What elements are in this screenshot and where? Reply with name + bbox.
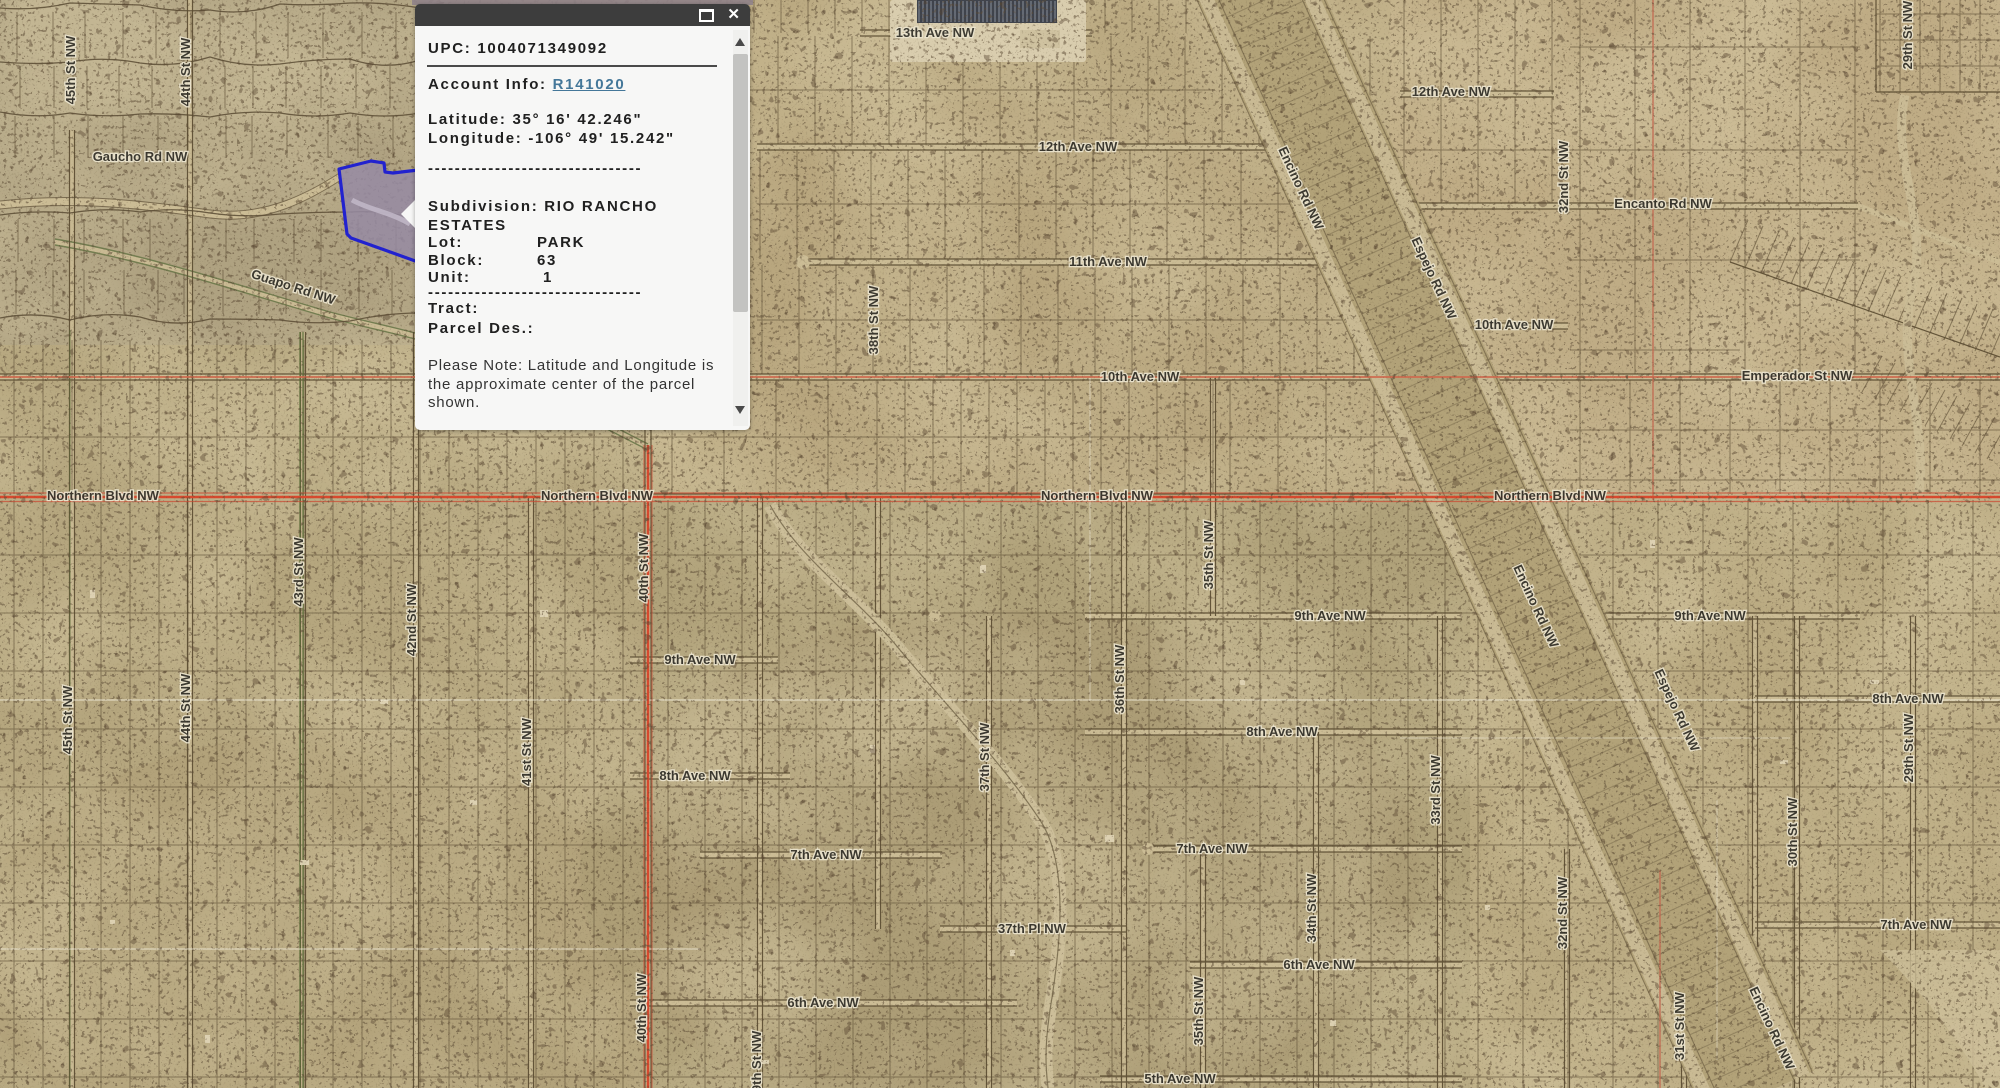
svg-text:31st St NW: 31st St NW: [1672, 991, 1687, 1060]
svg-text:7th Ave NW: 7th Ave NW: [790, 847, 862, 862]
svg-text:8th Ave NW: 8th Ave NW: [659, 768, 731, 783]
svg-text:43rd St NW: 43rd St NW: [291, 537, 306, 607]
svg-text:12th Ave NW: 12th Ave NW: [1412, 84, 1491, 99]
svg-text:35th St NW: 35th St NW: [1201, 520, 1216, 589]
svg-text:37th Pl NW: 37th Pl NW: [998, 921, 1067, 936]
svg-text:30th St NW: 30th St NW: [1785, 797, 1800, 866]
svg-text:44th St NW: 44th St NW: [178, 37, 193, 106]
svg-text:6th Ave NW: 6th Ave NW: [1283, 957, 1355, 972]
svg-text:34th St NW: 34th St NW: [1304, 873, 1319, 942]
svg-text:Gaucho Rd NW: Gaucho Rd NW: [93, 149, 188, 164]
svg-text:13th Ave NW: 13th Ave NW: [896, 25, 975, 40]
svg-text:42nd St NW: 42nd St NW: [404, 583, 419, 656]
svg-text:12th Ave NW: 12th Ave NW: [1039, 139, 1118, 154]
svg-text:9th Ave NW: 9th Ave NW: [664, 652, 736, 667]
svg-text:45th St NW: 45th St NW: [60, 685, 75, 754]
svg-text:5th Ave NW: 5th Ave NW: [1144, 1071, 1216, 1086]
svg-text:Northern Blvd NW: Northern Blvd NW: [47, 488, 160, 503]
svg-text:33rd St NW: 33rd St NW: [1428, 755, 1443, 825]
svg-text:7th Ave NW: 7th Ave NW: [1880, 917, 1952, 932]
svg-text:37th St NW: 37th St NW: [977, 722, 992, 791]
svg-text:10th Ave NW: 10th Ave NW: [1101, 369, 1180, 384]
svg-text:44th St NW: 44th St NW: [178, 673, 193, 742]
svg-text:40th St NW: 40th St NW: [634, 973, 649, 1042]
svg-text:32nd St NW: 32nd St NW: [1556, 140, 1571, 213]
svg-text:9th Ave NW: 9th Ave NW: [1294, 608, 1366, 623]
svg-text:11th Ave NW: 11th Ave NW: [1069, 254, 1148, 269]
svg-text:6th Ave NW: 6th Ave NW: [787, 995, 859, 1010]
svg-text:36th St NW: 36th St NW: [1112, 644, 1127, 713]
svg-text:8th Ave NW: 8th Ave NW: [1872, 691, 1944, 706]
svg-text:8th Ave NW: 8th Ave NW: [1246, 724, 1318, 739]
svg-text:29th St NW: 29th St NW: [1901, 713, 1916, 782]
svg-text:10th Ave NW: 10th Ave NW: [1475, 317, 1554, 332]
svg-text:32nd St NW: 32nd St NW: [1555, 876, 1570, 949]
svg-text:39th St NW: 39th St NW: [749, 1030, 764, 1088]
svg-text:Encanto Rd NW: Encanto Rd NW: [1614, 196, 1712, 211]
svg-text:29th St NW: 29th St NW: [1900, 0, 1915, 69]
svg-text:Emperador St NW: Emperador St NW: [1742, 368, 1853, 383]
svg-text:41st St NW: 41st St NW: [519, 717, 534, 786]
svg-text:Northern Blvd NW: Northern Blvd NW: [1494, 488, 1607, 503]
svg-text:35th St NW: 35th St NW: [1191, 976, 1206, 1045]
svg-text:Northern Blvd NW: Northern Blvd NW: [1041, 488, 1154, 503]
svg-text:Northern Blvd NW: Northern Blvd NW: [541, 488, 654, 503]
svg-text:7th Ave NW: 7th Ave NW: [1176, 841, 1248, 856]
svg-text:9th Ave NW: 9th Ave NW: [1674, 608, 1746, 623]
svg-text:45th St NW: 45th St NW: [63, 35, 78, 104]
svg-text:40th St NW: 40th St NW: [636, 533, 651, 602]
svg-text:38th St NW: 38th St NW: [866, 285, 881, 354]
